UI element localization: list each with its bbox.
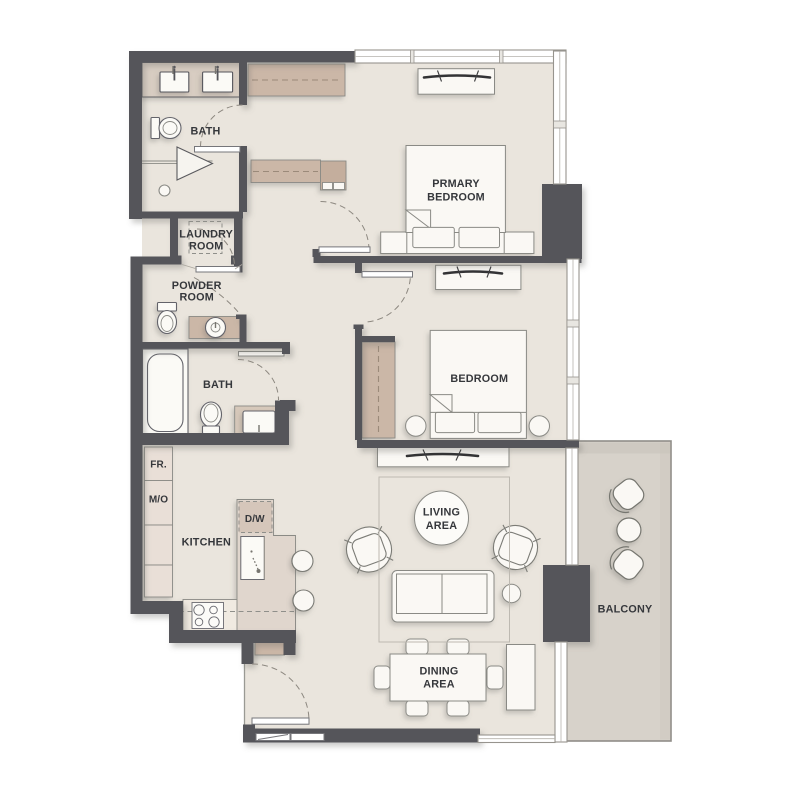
svg-text:AREA: AREA [423, 679, 454, 691]
svg-text:BATH: BATH [203, 379, 233, 391]
svg-text:FR.: FR. [150, 459, 167, 470]
svg-text:BEDROOM: BEDROOM [427, 191, 485, 203]
svg-text:POWDER: POWDER [172, 280, 222, 292]
svg-text:KITCHEN: KITCHEN [182, 536, 231, 548]
svg-text:BEDROOM: BEDROOM [450, 373, 508, 385]
svg-text:AREA: AREA [426, 520, 457, 532]
svg-text:D/W: D/W [245, 514, 265, 525]
svg-text:LAUNDRY: LAUNDRY [179, 229, 233, 241]
svg-text:LIVING: LIVING [423, 507, 460, 519]
svg-text:DINING: DINING [420, 666, 459, 678]
svg-text:ROOM: ROOM [189, 241, 223, 253]
svg-text:BALCONY: BALCONY [598, 604, 653, 616]
svg-text:BATH: BATH [191, 125, 221, 137]
svg-text:M/O: M/O [149, 494, 168, 505]
svg-text:PRMARY: PRMARY [432, 178, 480, 190]
svg-text:ROOM: ROOM [180, 292, 214, 304]
